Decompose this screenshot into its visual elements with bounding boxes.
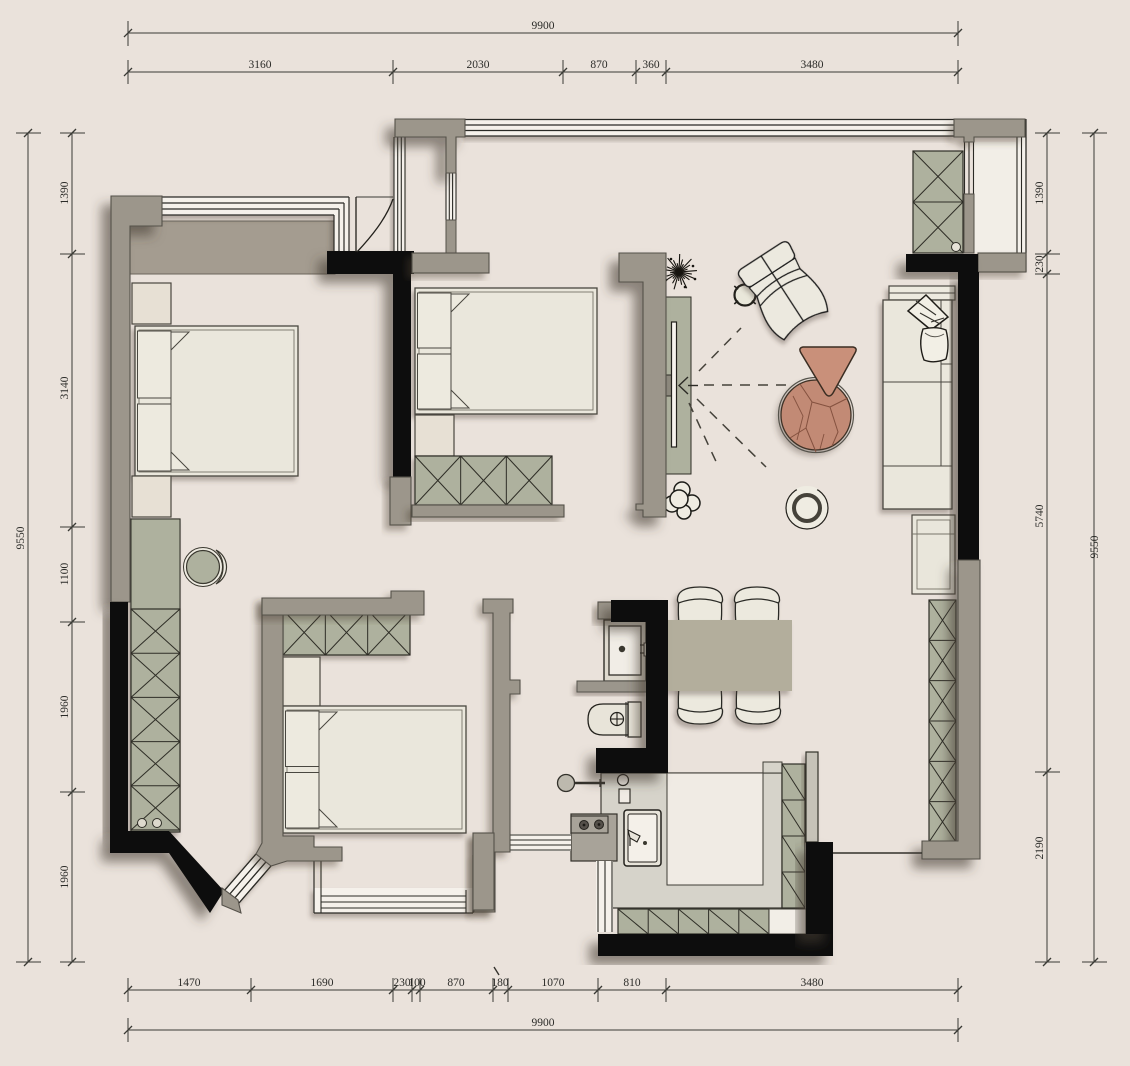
svg-text:3480: 3480 (801, 59, 824, 71)
svg-text:9550: 9550 (1089, 535, 1101, 558)
svg-text:360: 360 (642, 59, 660, 71)
svg-text:3480: 3480 (801, 977, 824, 989)
svg-text:230: 230 (1034, 255, 1046, 273)
svg-text:2030: 2030 (467, 59, 490, 71)
svg-text:9900: 9900 (532, 20, 555, 32)
svg-text:1100: 1100 (59, 562, 71, 585)
svg-text:2190: 2190 (1034, 836, 1046, 859)
svg-text:3140: 3140 (59, 376, 71, 399)
svg-text:180: 180 (491, 977, 509, 989)
svg-text:9900: 9900 (532, 1017, 555, 1029)
svg-text:1390: 1390 (59, 181, 71, 204)
svg-text:1960: 1960 (59, 695, 71, 718)
svg-text:100: 100 (408, 977, 426, 989)
svg-text:5740: 5740 (1034, 504, 1046, 527)
svg-text:870: 870 (590, 59, 608, 71)
svg-text:1960: 1960 (59, 865, 71, 888)
svg-text:1070: 1070 (542, 977, 565, 989)
svg-text:810: 810 (623, 977, 641, 989)
svg-text:3160: 3160 (249, 59, 272, 71)
svg-text:9550: 9550 (15, 526, 27, 549)
svg-text:1470: 1470 (178, 977, 201, 989)
svg-text:870: 870 (447, 977, 465, 989)
svg-text:1390: 1390 (1034, 181, 1046, 204)
svg-text:1690: 1690 (311, 977, 334, 989)
